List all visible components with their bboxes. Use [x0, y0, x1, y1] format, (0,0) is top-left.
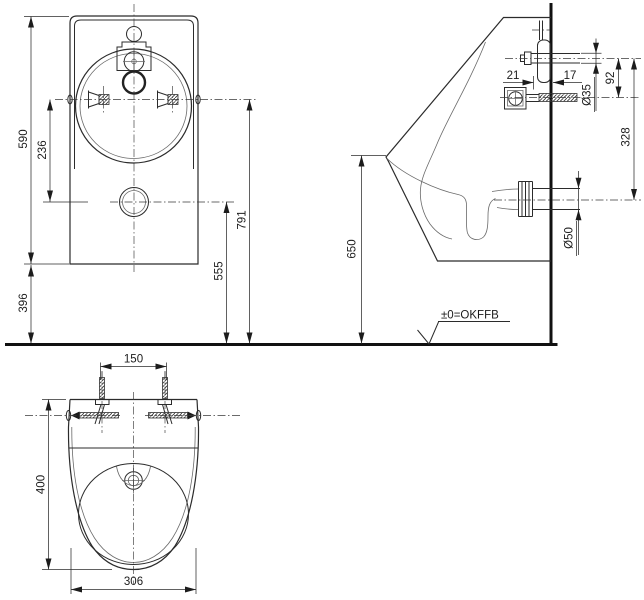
front-dimensions: 590 236 396 791 555	[18, 17, 253, 344]
floor-level-label: ±0=OKFFB	[441, 310, 499, 322]
dim-150-label: 150	[124, 354, 143, 366]
plan-rim-inner-right	[134, 427, 196, 563]
plan-rim-inner-left	[72, 427, 134, 563]
dim-dia35-label: Ø35	[582, 84, 594, 106]
side-outlet-spigot	[492, 189, 518, 210]
front-view: 590 236 396 791 555	[18, 4, 258, 344]
dim-21-label: 21	[507, 70, 520, 82]
floor-level-symbol	[418, 322, 439, 344]
hanger-bracket	[532, 21, 551, 83]
plan-fixing-bolt-right	[158, 371, 172, 433]
side-bowl-back-surface	[420, 42, 485, 239]
dim-17-label: 17	[564, 70, 577, 82]
plan-view: 150 400 306	[25, 354, 240, 595]
side-view: 21 17 Ø35 92 328 Ø50 650	[5, 3, 641, 346]
dim-400-label: 400	[36, 475, 48, 494]
side-bowl-front-surface	[387, 159, 496, 240]
drain-pipe	[533, 189, 580, 210]
dim-328-label: 328	[621, 127, 633, 146]
drawing-svg: 590 236 396 791 555	[0, 0, 644, 600]
dim-396-label: 396	[18, 293, 30, 312]
floor-level-flag: ±0=OKFFB	[418, 310, 511, 345]
drain-flange	[519, 182, 533, 217]
dim-650-label: 650	[347, 239, 359, 258]
dim-dia50-label: Ø50	[564, 227, 576, 249]
dim-236-label: 236	[37, 140, 49, 159]
technical-drawing-canvas: 590 236 396 791 555	[0, 0, 644, 600]
dim-555-label: 555	[214, 261, 226, 280]
front-bowl-inner	[80, 54, 187, 159]
dim-590-label: 590	[18, 129, 30, 148]
side-profile-outline	[386, 18, 551, 262]
dim-306-label: 306	[124, 576, 143, 588]
dim-791-label: 791	[237, 210, 249, 229]
dim-92-label: 92	[605, 72, 617, 85]
side-dimensions: 21 17 Ø35 92 328 Ø50 650	[347, 39, 638, 345]
plan-fixing-bolt-left	[95, 371, 109, 433]
